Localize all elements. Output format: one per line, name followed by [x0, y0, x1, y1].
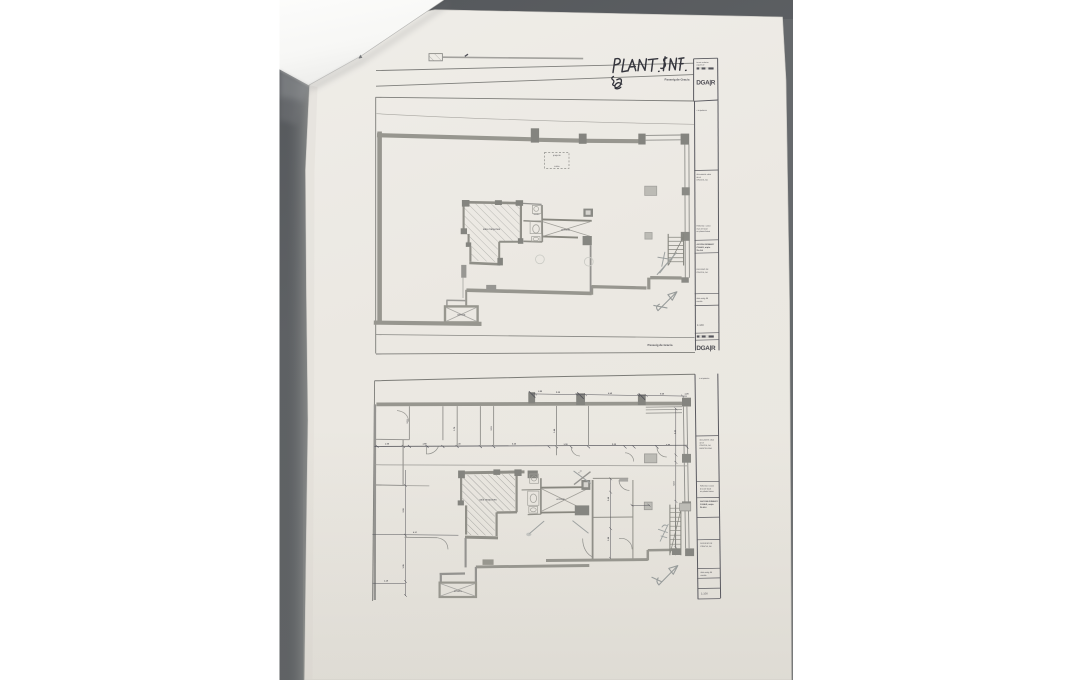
svg-text:entrada: entrada	[556, 498, 565, 501]
svg-text:sala maquines: sala maquines	[479, 498, 497, 501]
svg-text:1:100: 1:100	[697, 324, 704, 327]
svg-text:GRACIA, 54: GRACIA, 54	[697, 271, 709, 274]
svg-text:terraza: terraza	[457, 314, 466, 317]
svg-text:ANTONI GISBERT: ANTONI GISBERT	[700, 500, 718, 503]
svg-text:lavabo: lavabo	[534, 213, 540, 216]
svg-text:entrada: entrada	[561, 228, 570, 231]
svg-text:DGA|R: DGA|R	[696, 345, 716, 352]
svg-text:CANES, arqte.: CANES, arqte.	[697, 246, 712, 249]
svg-text:c arquitecte: c arquitecte	[697, 109, 708, 112]
svg-text:1:100: 1:100	[701, 593, 708, 596]
svg-text:escala:: escala:	[701, 574, 708, 577]
svg-text:GRACIA, 54: GRACIA, 54	[697, 179, 709, 182]
svg-text:Passeig de Gracia: Passeig de Gracia	[648, 343, 673, 347]
svg-text:documents visat: documents visat	[700, 439, 715, 442]
svg-text:cuina: cuina	[554, 165, 560, 168]
svg-text:en planta baixa: en planta baixa	[700, 490, 714, 493]
svg-text:d'us de local: d'us de local	[700, 487, 712, 490]
svg-text:data maig 98: data maig 98	[701, 571, 713, 574]
svg-text:25.414: 25.414	[697, 249, 704, 252]
svg-text:de el: de el	[700, 441, 705, 444]
svg-text:arquitecte: arquitecte	[696, 63, 704, 66]
svg-text:Reforma i canvi: Reforma i canvi	[700, 485, 714, 488]
svg-text:documents visat: documents visat	[697, 173, 712, 176]
svg-text:Reforma i canvi: Reforma i canvi	[697, 225, 711, 228]
svg-text:ANTONI GISBERT: ANTONI GISBERT	[697, 243, 715, 246]
svg-text:DGA|R: DGA|R	[696, 79, 716, 86]
svg-text:d'us de local: d'us de local	[697, 227, 709, 230]
svg-text:de el: de el	[697, 176, 702, 179]
svg-text:BARCELONA: BARCELONA	[700, 447, 713, 450]
svg-text:CANES, arqte.: CANES, arqte.	[700, 503, 715, 506]
svg-text:PASSEIG DE: PASSEIG DE	[697, 268, 710, 271]
svg-text:terraza: terraza	[454, 590, 462, 593]
svg-text:PASSEIG DE: PASSEIG DE	[700, 542, 713, 545]
svg-text:25.414: 25.414	[700, 506, 707, 509]
svg-text:Passeig de Gracia: Passeig de Gracia	[665, 77, 690, 81]
svg-text:sala maquines: sala maquines	[483, 228, 501, 231]
svg-text:projecte: projecte	[553, 154, 562, 157]
svg-text:GRACIA, 54: GRACIA, 54	[700, 444, 712, 447]
svg-text:GRACIA, 54: GRACIA, 54	[700, 545, 712, 548]
svg-text:escala:: escala:	[697, 300, 704, 303]
svg-text:tecnic redactor: tecnic redactor	[696, 61, 709, 64]
svg-text:data maig 98: data maig 98	[697, 297, 709, 300]
svg-text:c arquitecte: c arquitecte	[699, 377, 710, 380]
svg-text:en planta baixa: en planta baixa	[697, 230, 711, 233]
